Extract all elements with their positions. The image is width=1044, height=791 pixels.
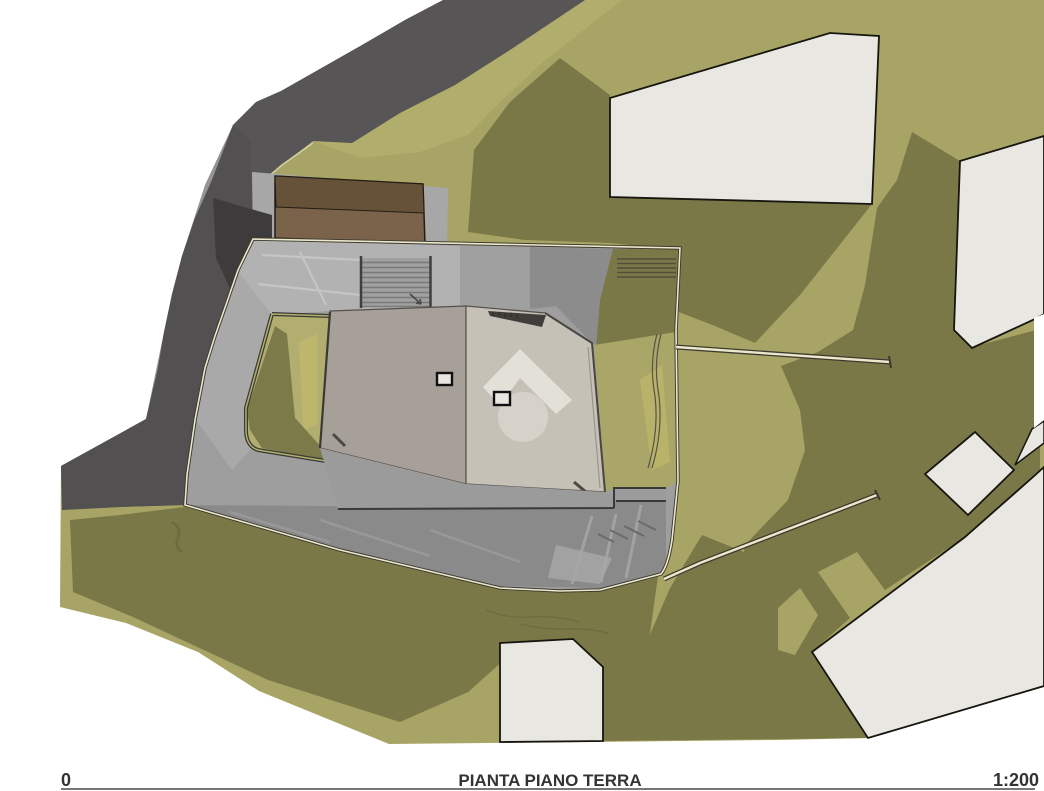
svg-text:0: 0 [61, 770, 71, 790]
svg-text:1:200: 1:200 [993, 770, 1039, 790]
svg-text:PIANTA PIANO TERRA: PIANTA PIANO TERRA [458, 771, 641, 790]
